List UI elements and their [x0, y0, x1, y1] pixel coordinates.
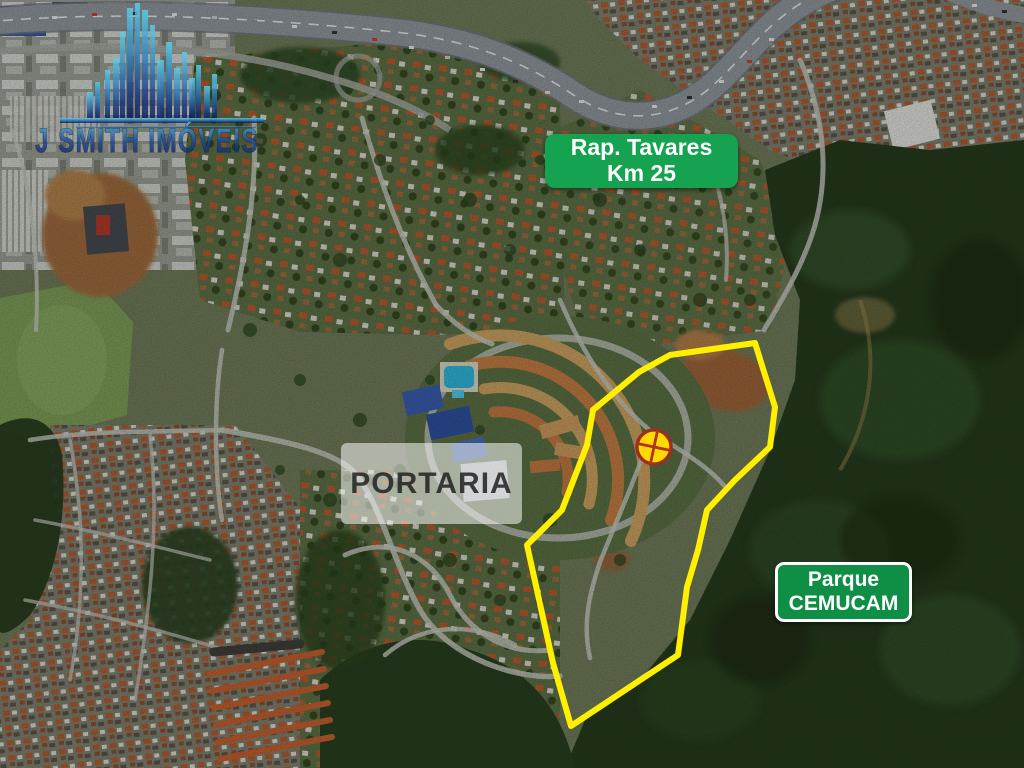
gate-label: PORTARIA	[341, 443, 522, 524]
park-sign: Parque CEMUCAM	[775, 562, 912, 622]
park-sign-line2: CEMUCAM	[789, 592, 899, 616]
highway-sign-line2: Km 25	[607, 161, 676, 187]
satellite-imagery	[0, 0, 1024, 768]
highway-sign-line1: Rap. Tavares	[571, 135, 712, 161]
park-sign-line1: Parque	[808, 568, 879, 592]
satellite-terrain	[0, 0, 1024, 768]
image-grain	[0, 0, 1024, 768]
gate-label-text: PORTARIA	[350, 467, 512, 501]
listing-aerial-image: J SMITH IMÓVEIS Rap. Tavares Km 25 PORTA…	[0, 0, 1024, 768]
highway-sign: Rap. Tavares Km 25	[545, 134, 738, 188]
